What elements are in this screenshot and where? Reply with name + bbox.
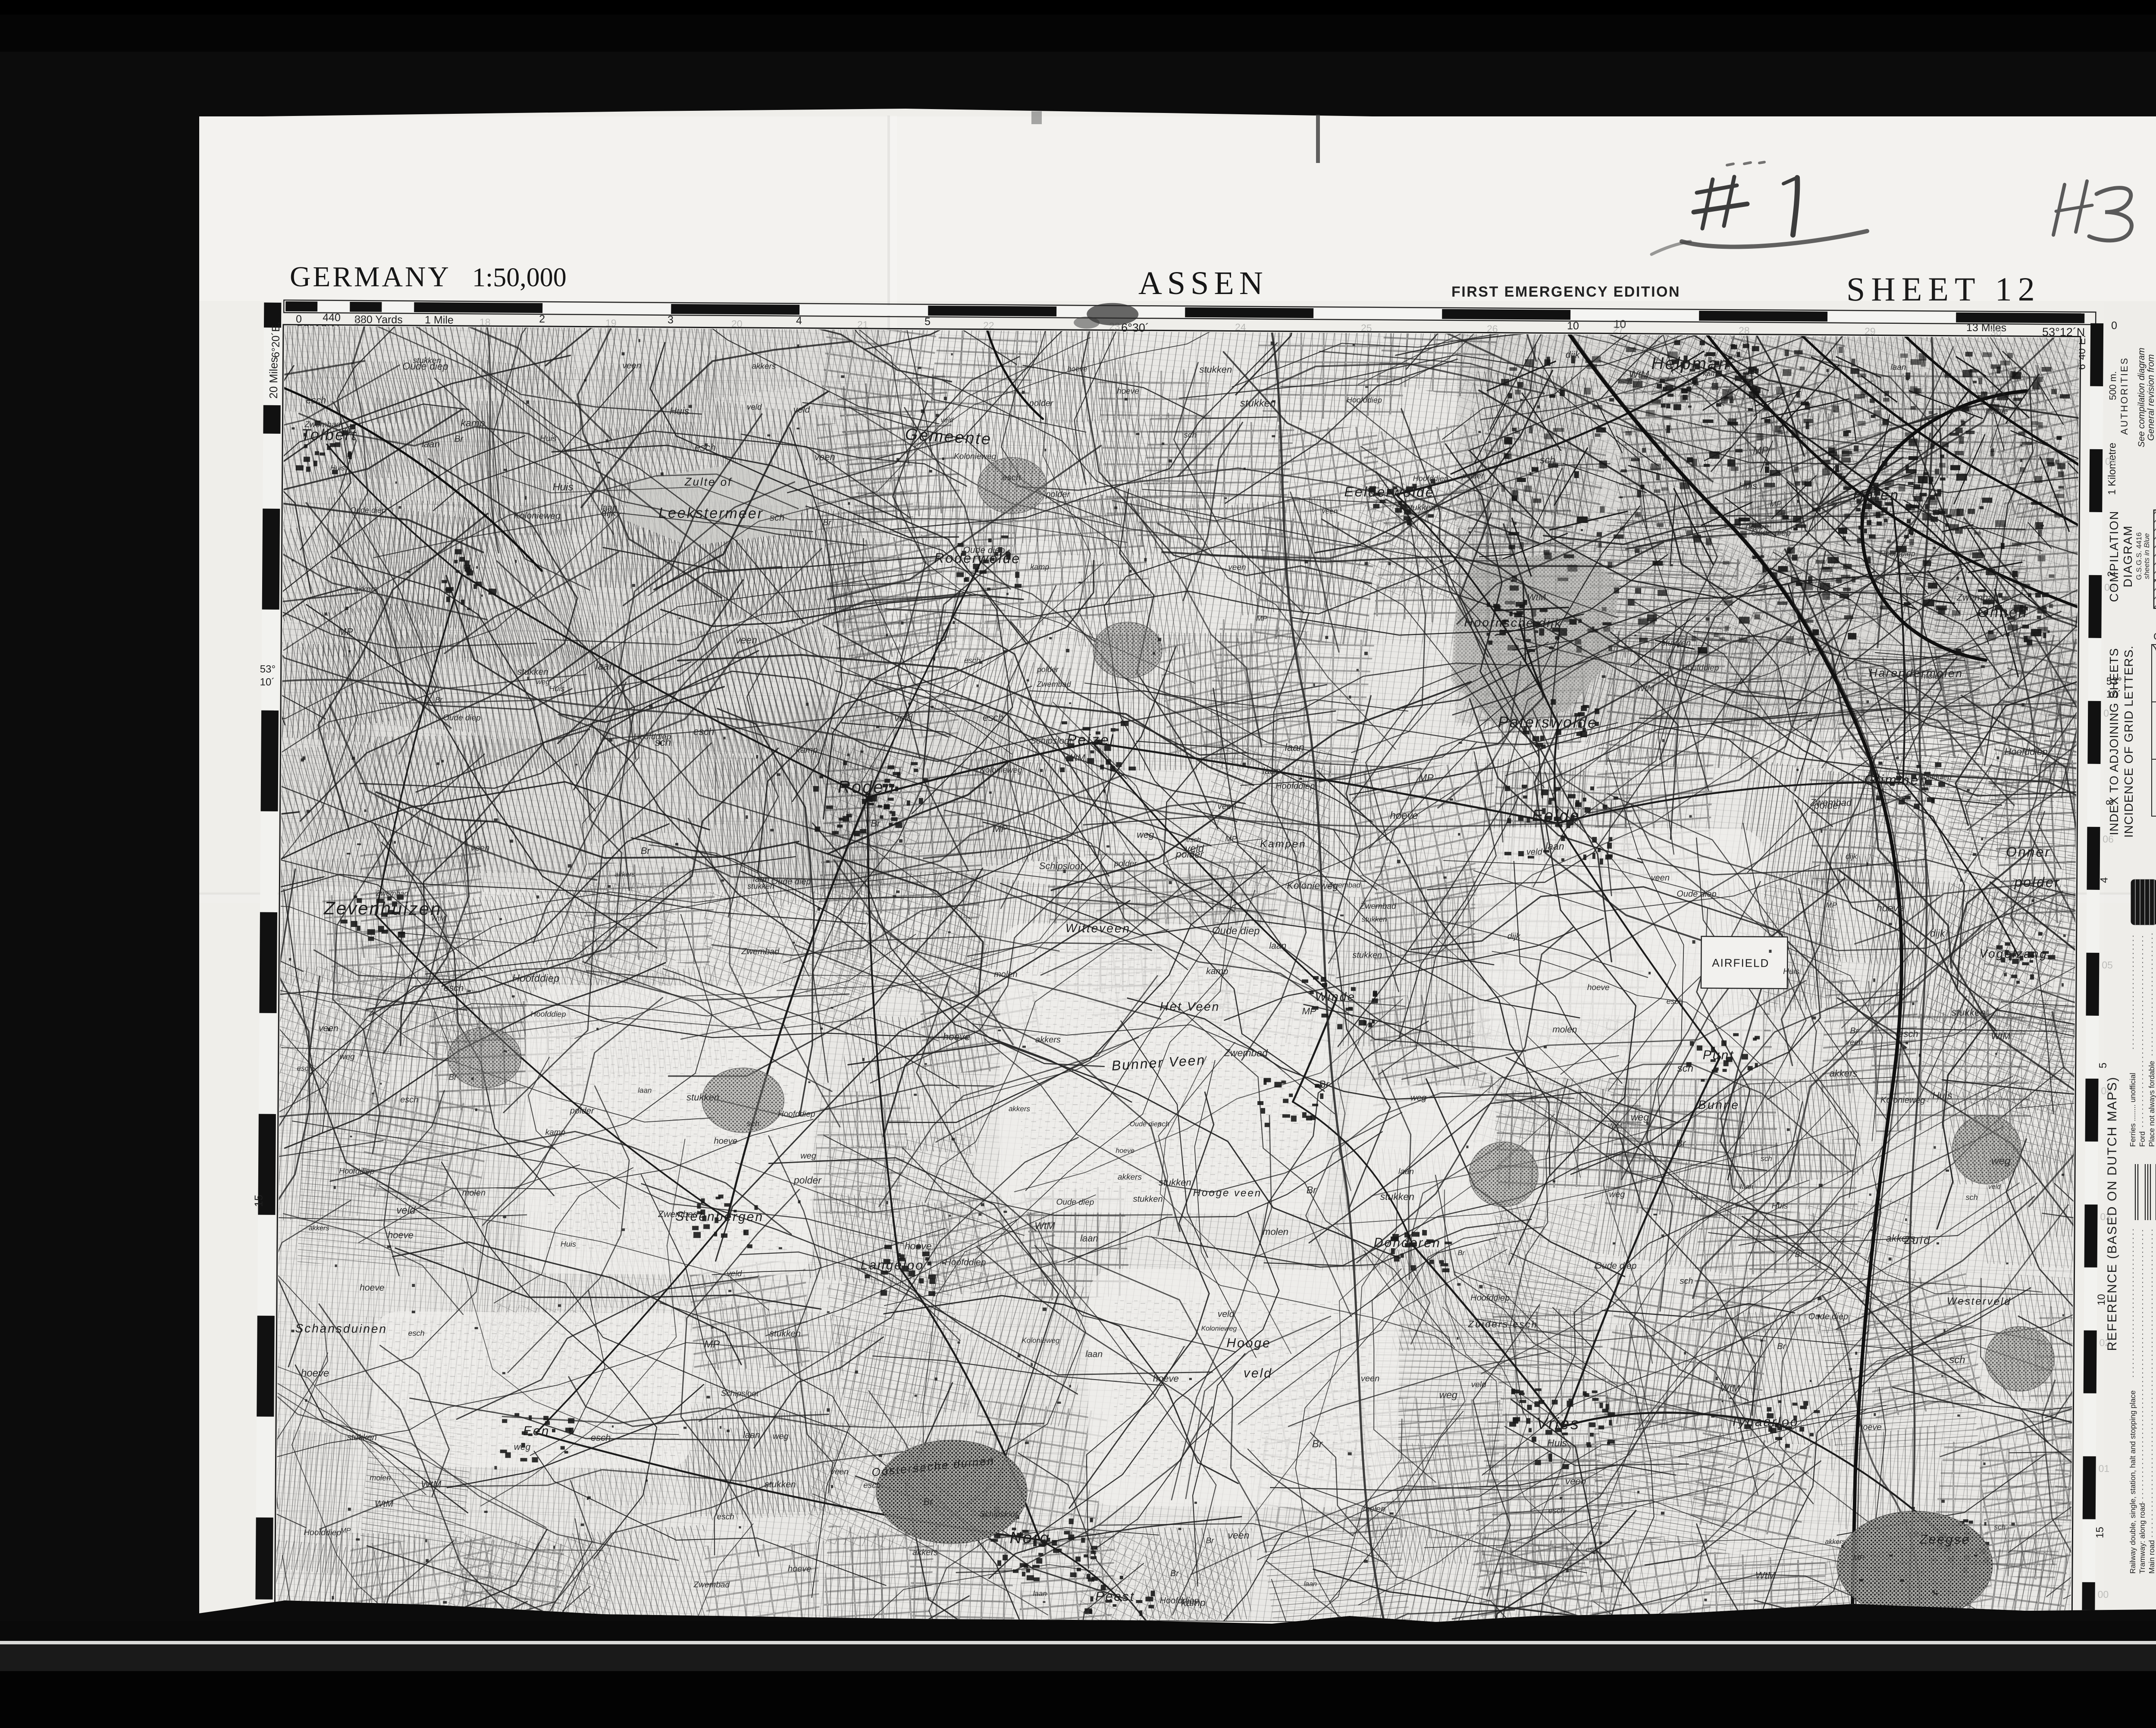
- svg-text:Huis: Huis: [549, 684, 564, 693]
- svg-text:Hoofddiep: Hoofddiep: [1918, 773, 1952, 781]
- svg-text:veld: veld: [941, 416, 954, 424]
- svg-text:20 Miles: 20 Miles: [267, 357, 280, 399]
- svg-text:Huis: Huis: [552, 481, 573, 493]
- svg-text:Kolonieweg: Kolonieweg: [1287, 880, 1338, 891]
- svg-text:Tynaarloo: Tynaarloo: [1730, 1415, 1799, 1429]
- svg-text:laan: laan: [1304, 1581, 1317, 1588]
- svg-text:weg: weg: [1439, 1389, 1458, 1400]
- svg-text:WtM: WtM: [1636, 684, 1655, 693]
- svg-text:Schipsloot: Schipsloot: [980, 1510, 1018, 1519]
- svg-text:Oude diep: Oude diep: [1808, 1312, 1848, 1321]
- svg-text:Zwembad: Zwembad: [658, 1209, 699, 1220]
- svg-text:polder: polder: [1045, 490, 1070, 499]
- svg-text:5: 5: [2097, 1063, 2109, 1069]
- svg-text:veen: veen: [471, 843, 490, 853]
- svg-text:Br: Br: [1206, 1536, 1214, 1545]
- svg-text:Br: Br: [1795, 1250, 1803, 1258]
- svg-text:veld: veld: [894, 712, 913, 723]
- svg-text:WtM: WtM: [1527, 592, 1546, 602]
- svg-text:polder: polder: [1462, 471, 1484, 480]
- svg-text:sch: sch: [1949, 1354, 1965, 1366]
- svg-text:molen: molen: [1363, 1505, 1385, 1514]
- svg-text:Zwembad: Zwembad: [1360, 902, 1397, 911]
- svg-text:weg: weg: [1631, 1111, 1649, 1123]
- svg-text:Ford: Ford: [2138, 1131, 2147, 1147]
- svg-text:Donderen: Donderen: [1374, 1236, 1441, 1250]
- svg-text:Br: Br: [871, 818, 881, 829]
- svg-text:Br: Br: [1850, 1026, 1859, 1036]
- svg-text:sch: sch: [1761, 1155, 1772, 1163]
- svg-text:INCIDENCE OF GRID LETTERS.: INCIDENCE OF GRID LETTERS.: [2122, 645, 2135, 838]
- svg-text:esch: esch: [693, 726, 714, 737]
- svg-text:laan: laan: [422, 438, 440, 449]
- svg-text:Zwembad: Zwembad: [1956, 592, 1999, 603]
- svg-text:Roden: Roden: [838, 778, 895, 797]
- svg-text:molen: molen: [462, 1188, 486, 1198]
- svg-text:Main road: Main road: [2147, 1540, 2156, 1574]
- svg-text:veld: veld: [1244, 1366, 1272, 1381]
- svg-text:stukken: stukken: [1380, 1191, 1414, 1202]
- svg-text:Br: Br: [1458, 1249, 1465, 1257]
- svg-text:1 Mile: 1 Mile: [425, 314, 454, 326]
- svg-text:veld: veld: [1185, 843, 1204, 855]
- svg-text:esch: esch: [297, 1064, 313, 1072]
- svg-text:akkers: akkers: [1009, 1105, 1031, 1113]
- svg-text:Hoofddiep: Hoofddiep: [304, 1528, 341, 1537]
- svg-text:weg: weg: [514, 1442, 531, 1452]
- svg-text:Witteveen: Witteveen: [1065, 921, 1131, 935]
- svg-text:sch: sch: [770, 512, 784, 523]
- svg-text:Oude diep: Oude diep: [1595, 1261, 1637, 1271]
- svg-text:sch: sch: [747, 1119, 760, 1128]
- svg-text:weg: weg: [1609, 1190, 1625, 1199]
- svg-text:Br: Br: [454, 434, 464, 444]
- svg-text:WtM: WtM: [1755, 1570, 1776, 1581]
- svg-text:Tramway: along road: Tramway: along road: [2138, 1503, 2147, 1574]
- svg-text:MP: MP: [1753, 445, 1768, 457]
- svg-text:kamp: kamp: [1206, 966, 1228, 976]
- svg-text:Hoofddiep: Hoofddiep: [1275, 781, 1315, 791]
- svg-text:esch: esch: [695, 441, 716, 453]
- svg-text:1 Kilometre: 1 Kilometre: [2106, 443, 2118, 495]
- svg-text:Eelderwolde: Eelderwolde: [1344, 484, 1434, 500]
- svg-text:Huis: Huis: [540, 434, 557, 443]
- svg-text:Peizel: Peizel: [1067, 732, 1115, 748]
- svg-text:veld: veld: [1988, 1183, 2002, 1190]
- svg-text:sch: sch: [1184, 431, 1197, 440]
- svg-text:hoeve: hoeve: [1153, 1373, 1179, 1384]
- svg-text:Br: Br: [435, 695, 443, 704]
- svg-text:kamp: kamp: [1703, 369, 1721, 378]
- svg-text:Eelde: Eelde: [1532, 807, 1580, 825]
- svg-text:10: 10: [1567, 320, 1579, 332]
- svg-text:kamp: kamp: [796, 745, 818, 755]
- svg-text:INDEX TO ADJOINING SHEETS: INDEX TO ADJOINING SHEETS: [2107, 648, 2121, 836]
- svg-text:kamp: kamp: [545, 1128, 566, 1137]
- svg-text:Zwembad: Zwembad: [693, 1580, 730, 1590]
- svg-text:Kampen: Kampen: [1260, 838, 1307, 850]
- svg-text:kamp: kamp: [1030, 562, 1049, 571]
- svg-text:hoeve: hoeve: [1067, 365, 1087, 373]
- svg-text:akkers: akkers: [1035, 1035, 1061, 1045]
- svg-text:DIAGRAM: DIAGRAM: [2121, 525, 2134, 588]
- svg-text:Zwembad: Zwembad: [741, 947, 780, 957]
- svg-text:weg: weg: [1137, 829, 1154, 840]
- svg-text:hoeve: hoeve: [1390, 810, 1418, 821]
- svg-text:AIRFIELD: AIRFIELD: [1712, 956, 1769, 970]
- svg-text:veen: veen: [622, 361, 641, 370]
- svg-text:Hoofddiep: Hoofddiep: [1682, 664, 1719, 673]
- svg-text:veen: veen: [1228, 563, 1246, 572]
- svg-text:15: 15: [252, 1195, 265, 1207]
- svg-text:Hoofddiep: Hoofddiep: [339, 1167, 374, 1176]
- svg-text:veen: veen: [1228, 1530, 1249, 1541]
- svg-text:Onnen: Onnen: [1977, 604, 2028, 621]
- svg-text:molen: molen: [370, 1473, 391, 1482]
- svg-text:hoeve: hoeve: [943, 1031, 970, 1042]
- svg-text:esch: esch: [863, 1481, 881, 1490]
- svg-text:hoeve: hoeve: [301, 1367, 329, 1379]
- svg-text:veen: veen: [1846, 1038, 1863, 1046]
- svg-text:laan: laan: [638, 1086, 652, 1094]
- svg-text:Br: Br: [641, 845, 651, 856]
- svg-text:weg: weg: [800, 1151, 816, 1161]
- svg-text:WtM: WtM: [421, 1478, 442, 1490]
- svg-text:Br: Br: [1312, 1438, 1323, 1450]
- svg-text:sch: sch: [1994, 1523, 2006, 1531]
- svg-text:Br: Br: [923, 1496, 934, 1507]
- svg-text:WtM: WtM: [1720, 1383, 1740, 1393]
- svg-text:dijk: dijk: [601, 507, 617, 518]
- svg-text:Br: Br: [823, 518, 832, 527]
- svg-text:Vogelzang: Vogelzang: [1979, 947, 2047, 961]
- svg-text:Oude diep: Oude diep: [1677, 889, 1716, 899]
- svg-text:Br: Br: [448, 1073, 457, 1082]
- svg-text:akkers: akkers: [1886, 1233, 1915, 1244]
- svg-text:stukken: stukken: [413, 356, 441, 365]
- svg-text:hoeve: hoeve: [905, 1240, 932, 1252]
- svg-text:laan: laan: [1285, 742, 1304, 753]
- svg-text:Zwembad: Zwembad: [376, 889, 408, 898]
- svg-text:dijk: dijk: [1566, 349, 1580, 360]
- svg-text:Oude diep: Oude diep: [350, 506, 386, 515]
- svg-text:Winde: Winde: [1315, 990, 1356, 1004]
- svg-text:Zwembad: Zwembad: [1224, 1047, 1268, 1058]
- svg-text:esch: esch: [717, 1512, 734, 1521]
- svg-text:WtM: WtM: [1034, 1220, 1055, 1231]
- svg-text:stukken: stukken: [347, 1433, 377, 1442]
- svg-text:weg: weg: [340, 1052, 355, 1061]
- svg-text:Kolonieweg: Kolonieweg: [1201, 1325, 1237, 1333]
- svg-text:Vries: Vries: [1536, 1415, 1580, 1433]
- svg-text:Huis: Huis: [1547, 1437, 1567, 1448]
- svg-text:MP: MP: [704, 1339, 720, 1350]
- svg-text:dijk: dijk: [1507, 932, 1521, 941]
- svg-text:0: 0: [2111, 319, 2117, 332]
- svg-text:Langeloo: Langeloo: [860, 1258, 924, 1273]
- svg-text:440: 440: [323, 312, 341, 324]
- svg-text:Br: Br: [1676, 1137, 1686, 1149]
- svg-text:Kolonieweg: Kolonieweg: [514, 511, 561, 521]
- svg-text:stukken: stukken: [1352, 950, 1382, 960]
- svg-text:Hoofddiep: Hoofddiep: [1413, 474, 1448, 483]
- svg-text:Onner: Onner: [2006, 844, 2051, 860]
- svg-text:Paterswolde: Paterswolde: [1498, 713, 1598, 732]
- svg-text:akkers: akkers: [752, 362, 776, 371]
- svg-text:hoeve: hoeve: [1587, 983, 1610, 992]
- svg-text:weg: weg: [1991, 1155, 2011, 1167]
- svg-text:sheets in Blue: sheets in Blue: [2143, 533, 2151, 579]
- svg-text:Huis: Huis: [670, 405, 690, 416]
- svg-text:esch: esch: [983, 712, 1004, 723]
- svg-text:esch: esch: [1898, 1028, 1918, 1039]
- svg-text:Oude diep: Oude diep: [963, 545, 1005, 555]
- svg-text:FIRST EMERGENCY EDITION: FIRST EMERGENCY EDITION: [1451, 284, 1680, 300]
- svg-text:Schipsloot: Schipsloot: [721, 1389, 759, 1399]
- svg-text:laan: laan: [1263, 765, 1281, 776]
- svg-text:4: 4: [796, 315, 802, 327]
- svg-text:REFERENCE (BASED ON DUTCH: REFERENCE (BASED ON DUTCH MAPS): [2105, 1076, 2119, 1351]
- svg-text:WtM: WtM: [1629, 369, 1649, 380]
- svg-text:sch: sch: [1680, 1277, 1693, 1286]
- svg-text:MP: MP: [1225, 834, 1237, 843]
- svg-text:veld: veld: [793, 405, 811, 415]
- svg-text:laan: laan: [1740, 1183, 1753, 1190]
- svg-text:Oude diep: Oude diep: [443, 713, 481, 723]
- svg-text:WtM: WtM: [431, 915, 446, 922]
- svg-text:veen: veen: [815, 451, 835, 462]
- svg-text:Huis: Huis: [1739, 481, 1758, 491]
- svg-text:laan: laan: [743, 1430, 760, 1440]
- svg-text:dijk: dijk: [1930, 927, 1946, 939]
- svg-text:09: 09: [2105, 456, 2116, 467]
- svg-text:kamp: kamp: [1181, 1597, 1206, 1608]
- svg-text:Oude diep: Oude diep: [1130, 1121, 1162, 1128]
- svg-text:akkers: akkers: [1825, 1538, 1845, 1546]
- svg-text:MP: MP: [1826, 901, 1837, 909]
- svg-text:stukken: stukken: [1661, 638, 1691, 648]
- svg-text:stukken: stukken: [1362, 915, 1387, 923]
- svg-text:polder: polder: [570, 1106, 595, 1115]
- svg-text:MP: MP: [1853, 1553, 1865, 1562]
- svg-text:Kolonieweg: Kolonieweg: [954, 452, 997, 461]
- svg-text:Bunne: Bunne: [1698, 1098, 1739, 1112]
- svg-text:Het Veen: Het Veen: [1159, 999, 1220, 1013]
- svg-text:Hoofddiep: Hoofddiep: [512, 973, 560, 985]
- svg-text:Hoornsche dijk: Hoornsche dijk: [1464, 616, 1562, 630]
- svg-text:G.S.G.S. 4416: G.S.G.S. 4416: [2135, 532, 2143, 580]
- svg-text:Huis: Huis: [1771, 1202, 1788, 1211]
- svg-text:veen: veen: [1565, 1476, 1586, 1487]
- svg-text:Oude diep: Oude diep: [1751, 528, 1791, 538]
- svg-text:veld: veld: [1471, 1380, 1487, 1389]
- svg-text:dijk: dijk: [1846, 852, 1858, 861]
- svg-text:Hooge veen: Hooge veen: [1193, 1187, 1262, 1199]
- svg-text:esch: esch: [408, 1329, 424, 1337]
- svg-text:Schipsloot: Schipsloot: [1030, 736, 1072, 746]
- svg-text:stukken: stukken: [686, 1092, 719, 1103]
- svg-text:Zwembad: Zwembad: [1036, 680, 1071, 689]
- svg-text:weg: weg: [1410, 1093, 1426, 1102]
- svg-text:Oude diep: Oude diep: [1056, 1198, 1094, 1207]
- svg-text:SHEET 12: SHEET 12: [1846, 270, 2041, 308]
- svg-text:stukken: stukken: [1159, 1177, 1191, 1188]
- svg-text:Harendermolen: Harendermolen: [1869, 666, 1963, 679]
- svg-text:Kolonieweg: Kolonieweg: [1880, 1096, 1925, 1105]
- svg-text:hoeve: hoeve: [1877, 902, 1904, 914]
- svg-text:laan: laan: [1890, 363, 1906, 372]
- svg-text:Huis: Huis: [330, 464, 345, 472]
- svg-text:hoeve: hoeve: [1986, 407, 2008, 416]
- svg-text:Punt: Punt: [1703, 1048, 1735, 1062]
- svg-text:Hoofddiep: Hoofddiep: [1470, 1293, 1510, 1303]
- svg-text:WtM: WtM: [1608, 1122, 1623, 1130]
- svg-text:esch: esch: [444, 982, 464, 993]
- svg-text:Oude diep: Oude diep: [771, 877, 811, 887]
- svg-text:stukken: stukken: [1240, 398, 1276, 410]
- svg-text:Peest: Peest: [1095, 1590, 1135, 1604]
- svg-text:05: 05: [2102, 959, 2113, 970]
- svg-text:6°20´E.: 6°20´E.: [270, 322, 282, 358]
- svg-text:Br: Br: [1307, 1184, 1317, 1196]
- svg-text:laan: laan: [1398, 1167, 1414, 1176]
- svg-text:Zeegse: Zeegse: [1919, 1532, 1970, 1547]
- svg-text:sch: sch: [1677, 1062, 1694, 1074]
- svg-text:MP: MP: [340, 1527, 351, 1534]
- svg-text:01: 01: [2098, 1463, 2109, 1474]
- svg-text:veld: veld: [1218, 1309, 1235, 1319]
- svg-text:laan: laan: [1269, 941, 1286, 951]
- svg-text:esch: esch: [1548, 1506, 1565, 1515]
- svg-text:laan: laan: [1080, 1233, 1098, 1243]
- svg-text:Zuiders esch: Zuiders esch: [1468, 1318, 1538, 1330]
- svg-text:veen: veen: [1218, 801, 1237, 811]
- svg-text:weg: weg: [773, 1432, 789, 1441]
- svg-text:stukken: stukken: [747, 882, 774, 890]
- svg-text:Hoofddiep: Hoofddiep: [530, 1010, 566, 1019]
- svg-text:akkers: akkers: [354, 584, 377, 593]
- svg-text:veld: veld: [396, 1205, 416, 1216]
- svg-text:Huis: Huis: [1932, 1089, 1952, 1101]
- svg-text:sch: sch: [1540, 454, 1555, 465]
- svg-text:MP: MP: [1419, 772, 1434, 783]
- svg-text:veen: veen: [830, 1467, 848, 1476]
- svg-text:laan: laan: [1545, 840, 1564, 851]
- svg-text:hoeve: hoeve: [388, 1230, 414, 1240]
- svg-text:stukken: stukken: [1951, 1007, 1985, 1018]
- svg-text:Schipsloot: Schipsloot: [1039, 861, 1084, 872]
- svg-text:esch: esch: [306, 394, 326, 405]
- svg-text:laan: laan: [595, 661, 615, 672]
- svg-text:stukken: stukken: [517, 667, 549, 677]
- svg-text:molen: molen: [1263, 1226, 1288, 1237]
- svg-text:Huis: Huis: [1783, 967, 1800, 976]
- svg-text:Norg: Norg: [1009, 1529, 1050, 1547]
- svg-text:esch: esch: [591, 1432, 611, 1443]
- svg-text:Kolonieweg: Kolonieweg: [980, 766, 1022, 775]
- svg-text:Oude diep: Oude diep: [1212, 925, 1260, 937]
- svg-text:500 m.: 500 m.: [2107, 371, 2118, 400]
- svg-text:MP: MP: [1770, 500, 1781, 508]
- svg-text:Railway double, single, statio: Railway double, single, station, halt an…: [2128, 1390, 2137, 1574]
- svg-text:veld: veld: [1526, 847, 1543, 857]
- svg-text:4: 4: [2099, 877, 2110, 883]
- svg-text:WtM: WtM: [375, 1499, 394, 1509]
- svg-text:esch: esch: [1003, 473, 1021, 482]
- svg-text:Hooge: Hooge: [1226, 1336, 1271, 1351]
- svg-text:veld: veld: [727, 1269, 742, 1278]
- svg-text:akkers: akkers: [1118, 1173, 1142, 1182]
- svg-text:Een: Een: [523, 1424, 550, 1438]
- svg-text:hoeve: hoeve: [1858, 1422, 1882, 1432]
- svg-text:1:50,000: 1:50,000: [472, 263, 567, 292]
- svg-text:Hoofddiep: Hoofddiep: [945, 1257, 986, 1268]
- svg-text:Hoofddiep: Hoofddiep: [1880, 549, 1915, 558]
- svg-text:stukken: stukken: [769, 1329, 801, 1339]
- svg-text:veen: veen: [1322, 507, 1338, 515]
- svg-text:Haren: Haren: [1853, 487, 1899, 504]
- svg-text:53°: 53°: [260, 664, 276, 675]
- svg-text:stukken: stukken: [1133, 1194, 1163, 1204]
- svg-text:Zevenhuizen: Zevenhuizen: [323, 898, 442, 919]
- svg-text:stukken: stukken: [1199, 364, 1232, 375]
- svg-text:Zwembad: Zwembad: [304, 420, 341, 429]
- svg-text:veen: veen: [736, 634, 757, 645]
- svg-text:5: 5: [924, 316, 931, 328]
- svg-text:GERMANY: GERMANY: [2153, 631, 2156, 642]
- svg-text:weg: weg: [536, 678, 550, 686]
- svg-text:polder: polder: [1114, 859, 1138, 868]
- svg-text:Westerveld: Westerveld: [1947, 1296, 2012, 1308]
- svg-text:ASSEN: ASSEN: [1138, 265, 1268, 301]
- svg-text:veen: veen: [1361, 1374, 1380, 1384]
- svg-text:MP: MP: [1256, 614, 1267, 623]
- svg-text:3: 3: [667, 314, 674, 326]
- svg-text:akkers: akkers: [1830, 1068, 1858, 1079]
- svg-text:laan: laan: [1085, 1349, 1103, 1359]
- svg-text:kamp: kamp: [461, 417, 485, 429]
- svg-text:Place not always fordable: Place not always fordable: [2147, 1061, 2156, 1147]
- svg-text:10´: 10´: [260, 676, 275, 688]
- svg-text:hoeve: hoeve: [788, 1564, 812, 1574]
- svg-text:Br: Br: [344, 428, 351, 435]
- svg-text:00: 00: [2097, 1589, 2109, 1600]
- svg-text:hoeve: hoeve: [1117, 387, 1139, 396]
- svg-text:molen: molen: [1921, 672, 1944, 681]
- svg-text:AUTHORITIES: AUTHORITIES: [2119, 357, 2130, 435]
- svg-text:Hoofddiep: Hoofddiep: [778, 1110, 815, 1119]
- svg-text:Br: Br: [1170, 1569, 1179, 1578]
- svg-text:Br: Br: [1319, 1079, 1329, 1090]
- svg-text:akkers: akkers: [309, 1224, 329, 1232]
- svg-text:Schansduinen: Schansduinen: [295, 1321, 387, 1335]
- svg-text:polder: polder: [1814, 800, 1842, 811]
- svg-text:hoeve: hoeve: [360, 1283, 384, 1293]
- svg-text:COMPILATION: COMPILATION: [2107, 510, 2121, 602]
- svg-text:See compilation diagram: See compilation diagram: [2137, 347, 2147, 447]
- svg-text:Hoofddiep: Hoofddiep: [634, 732, 671, 742]
- svg-text:polder: polder: [1037, 665, 1059, 674]
- svg-text:Leekstermeer: Leekstermeer: [658, 505, 764, 522]
- svg-text:MP: MP: [338, 626, 353, 637]
- svg-text:veen: veen: [1651, 873, 1670, 883]
- svg-text:Kolonieweg: Kolonieweg: [1022, 1336, 1060, 1345]
- svg-text:General revision from: General revision from: [2146, 354, 2156, 441]
- svg-text:WtM: WtM: [1991, 1030, 2011, 1041]
- svg-text:polder: polder: [2014, 874, 2060, 890]
- svg-text:esch: esch: [1667, 997, 1683, 1005]
- svg-text:15: 15: [2094, 1527, 2106, 1538]
